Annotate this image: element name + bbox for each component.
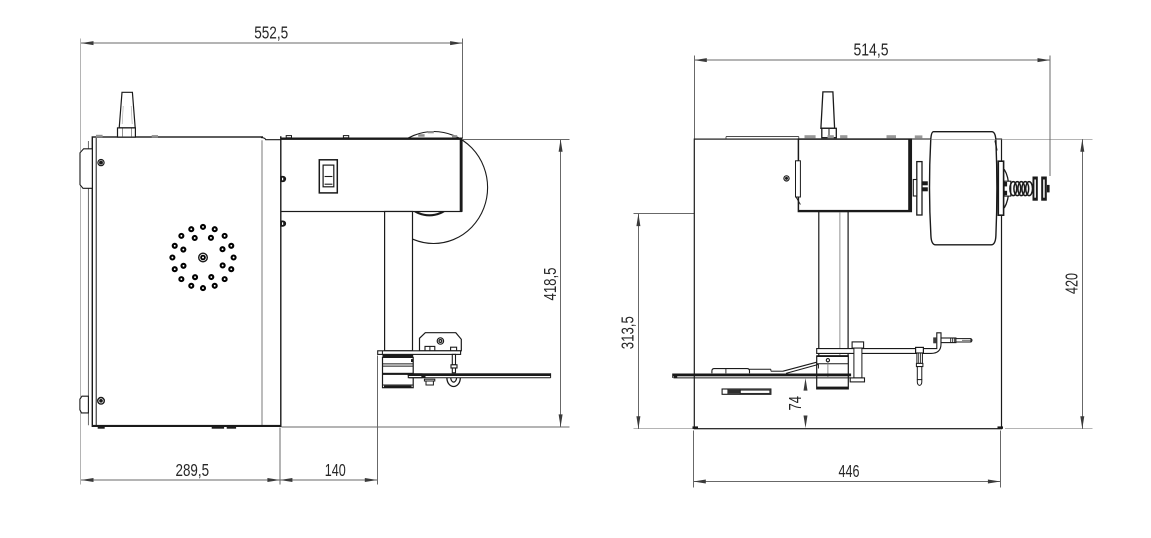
svg-text:140: 140 <box>325 460 346 480</box>
svg-text:446: 446 <box>839 461 860 481</box>
svg-text:74: 74 <box>785 396 805 411</box>
svg-text:552,5: 552,5 <box>254 22 288 42</box>
svg-text:289,5: 289,5 <box>176 460 210 480</box>
svg-text:313,5: 313,5 <box>617 316 637 349</box>
svg-text:418,5: 418,5 <box>540 267 560 300</box>
svg-text:514,5: 514,5 <box>854 39 889 59</box>
svg-text:420: 420 <box>1062 273 1082 294</box>
